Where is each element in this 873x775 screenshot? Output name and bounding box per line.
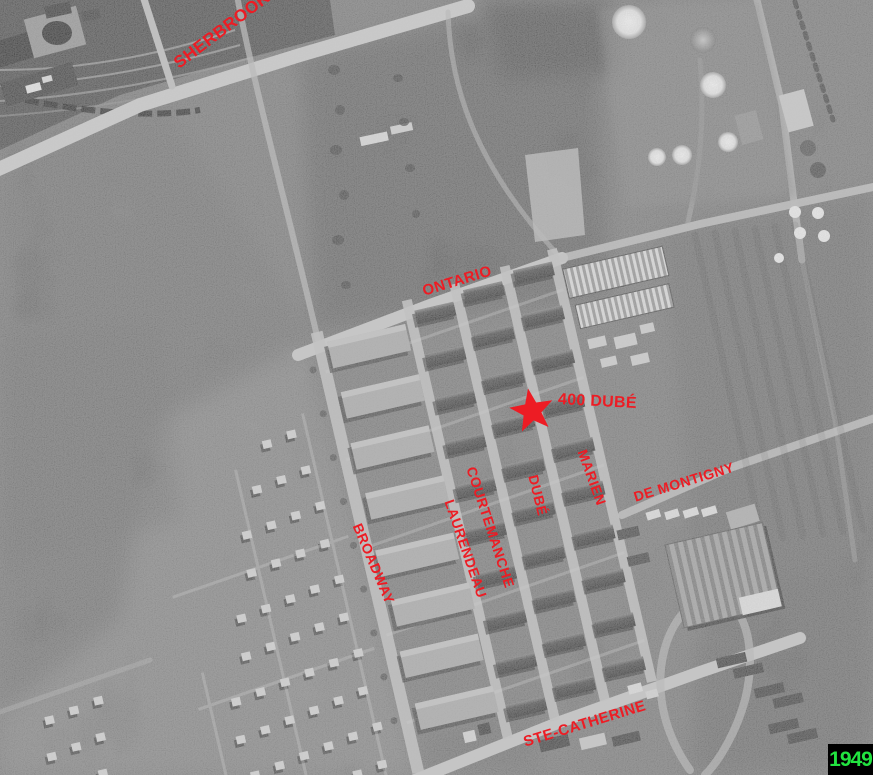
aerial-photo: SHERBROOKE ONTARIO BROADWAY LAURENDEAU C… — [0, 0, 873, 775]
year-badge: 1949 — [828, 744, 873, 775]
location-marker-star-icon — [505, 384, 559, 438]
star-shape — [509, 388, 552, 431]
aerial-photo-image — [0, 0, 873, 775]
